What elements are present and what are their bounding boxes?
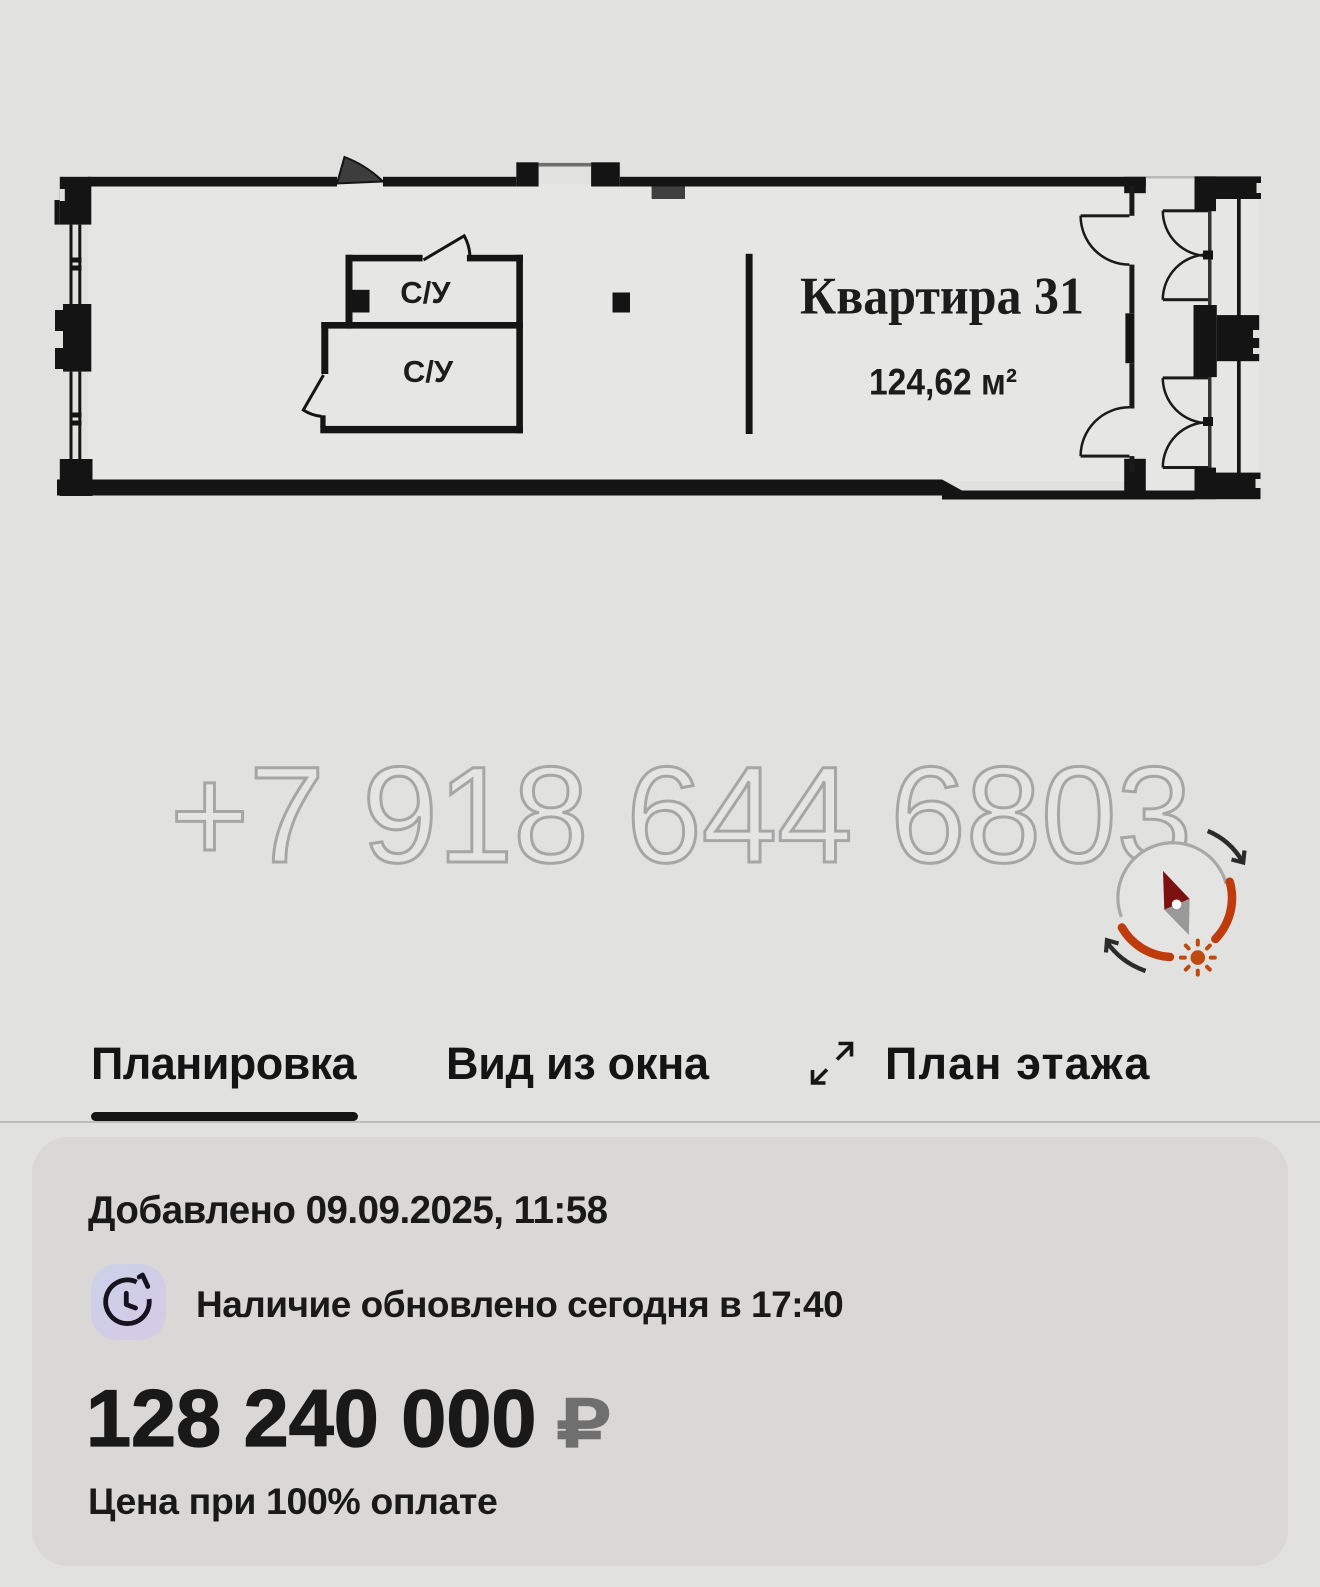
svg-text:+7 918 644 6803: +7 918 644 6803 <box>170 739 1192 892</box>
svg-text:С/У: С/У <box>400 275 451 310</box>
svg-text:С/У: С/У <box>403 354 454 389</box>
svg-text:124,62 м²: 124,62 м² <box>869 362 1017 403</box>
svg-text:Квартира 31: Квартира 31 <box>800 268 1084 326</box>
